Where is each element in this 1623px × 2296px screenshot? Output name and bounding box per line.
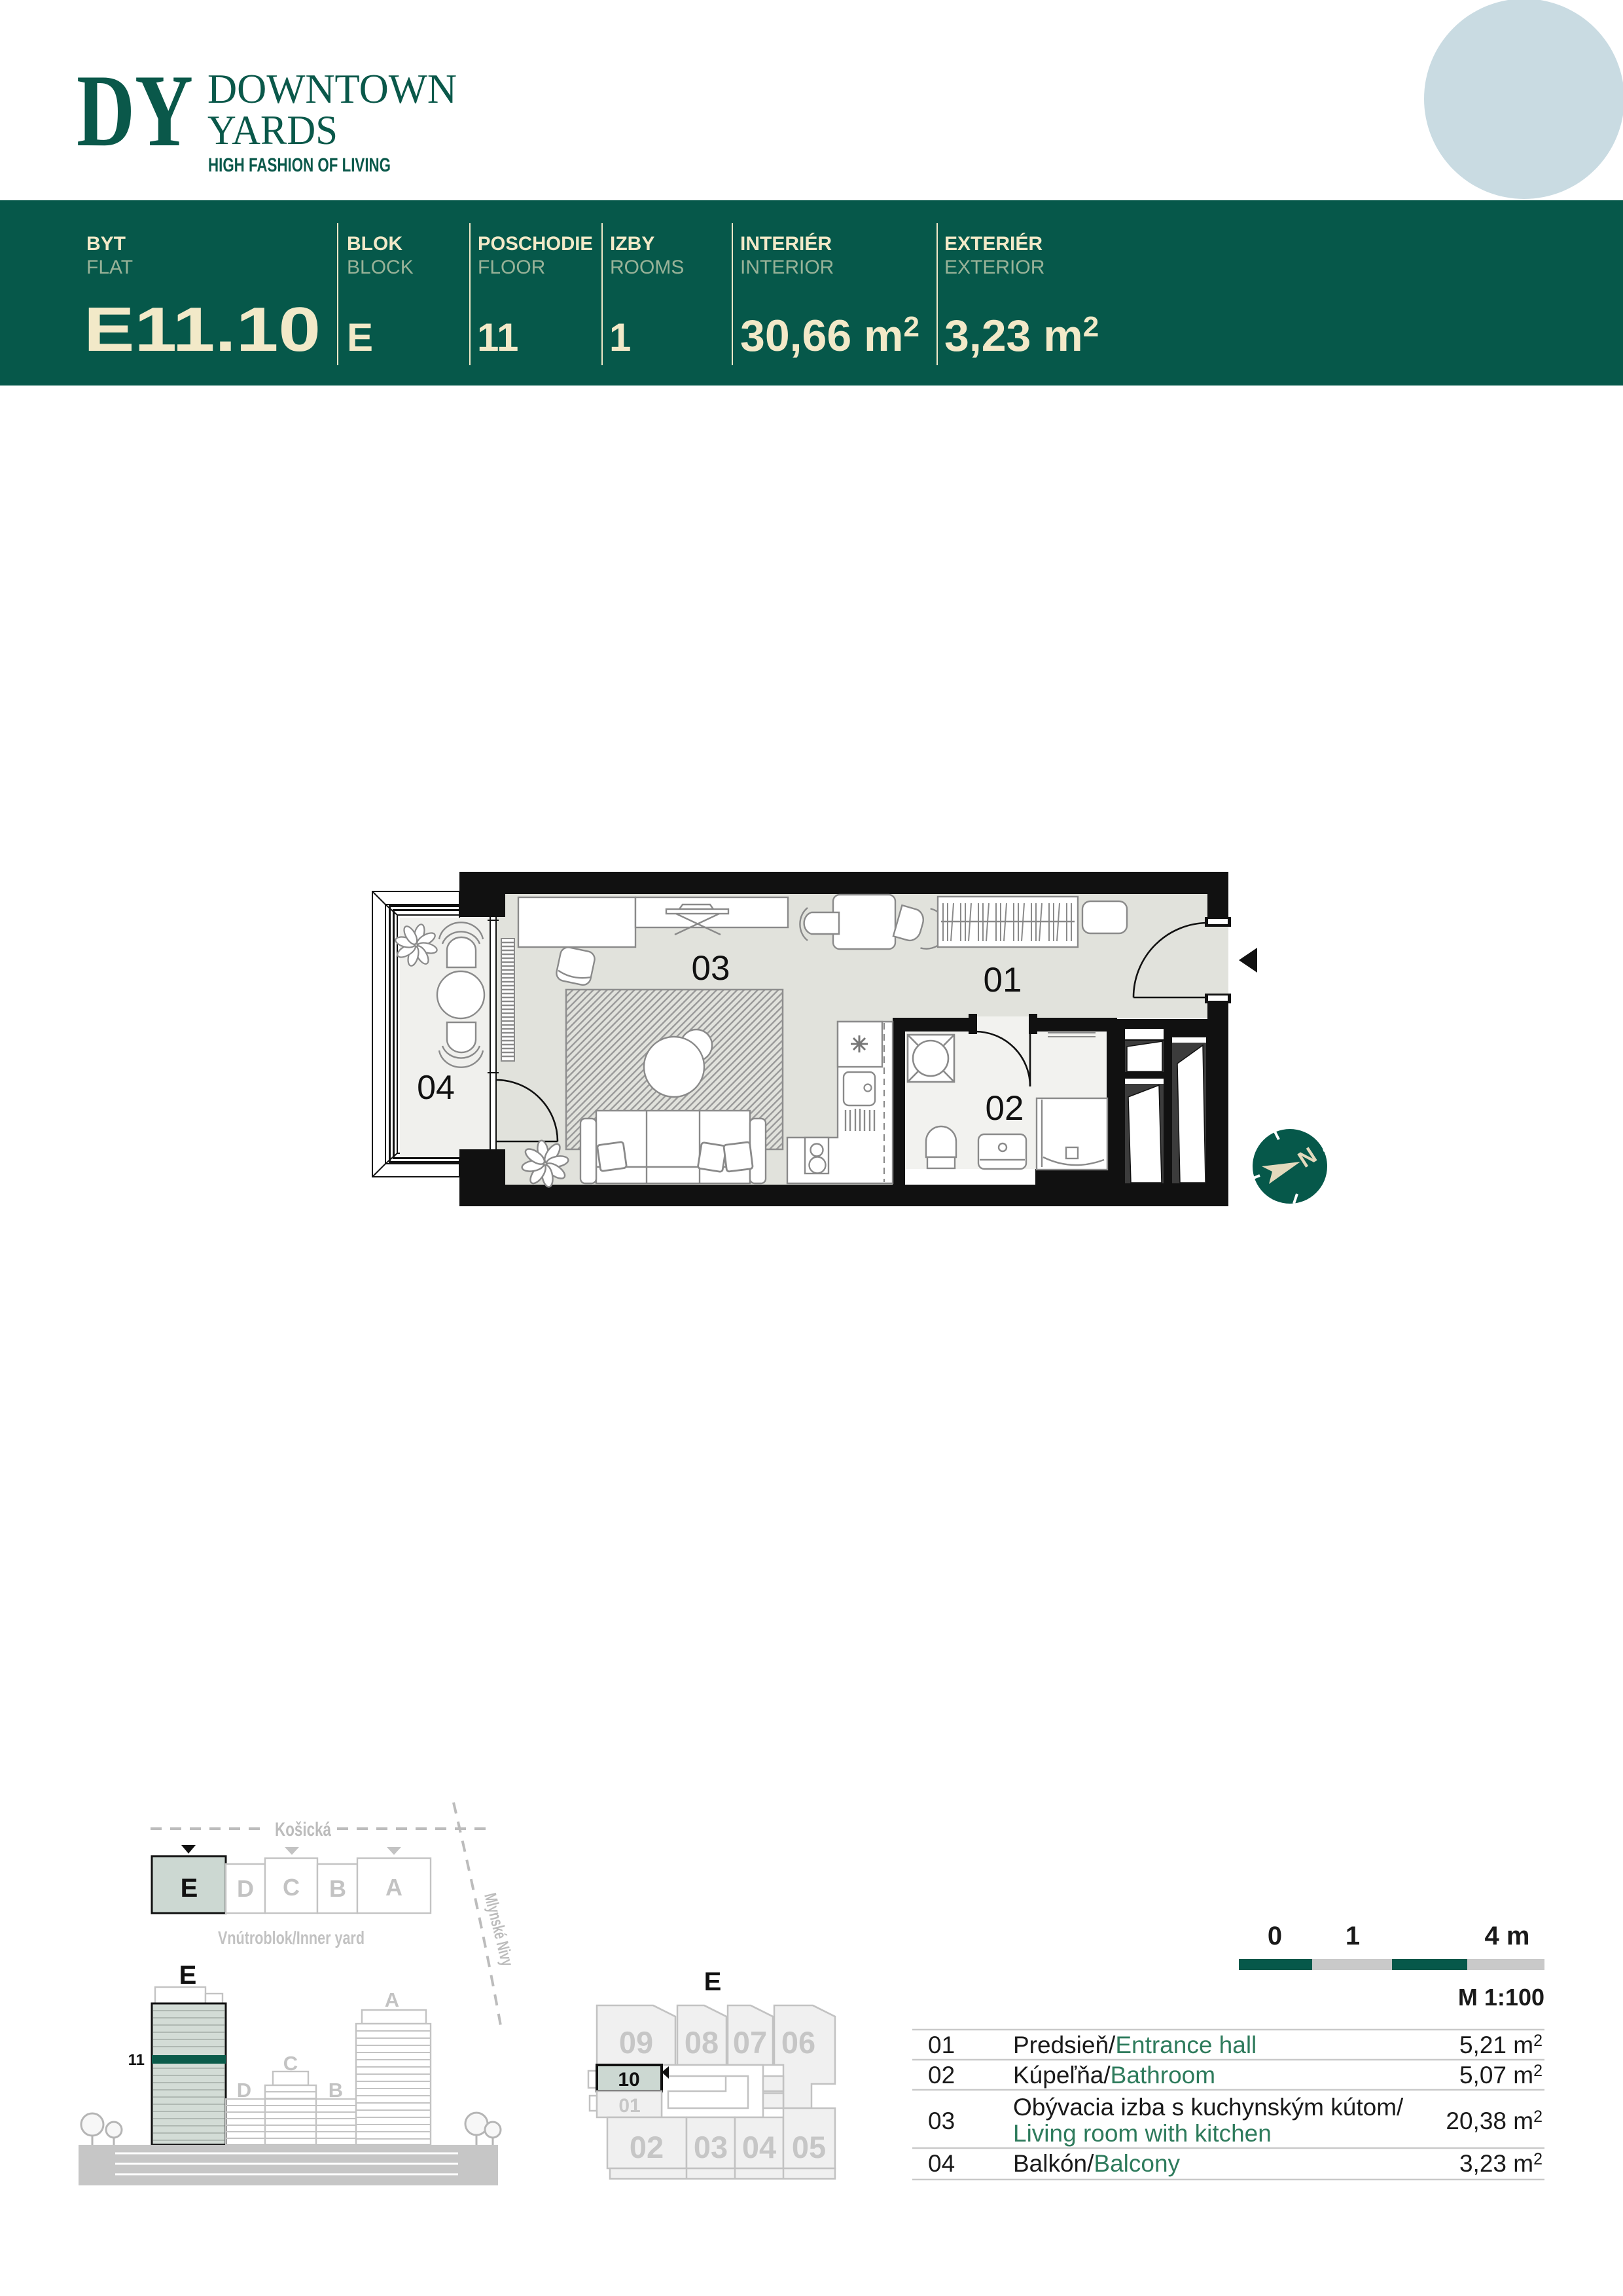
svg-text:04: 04 [742,2130,776,2164]
svg-text:D: D [237,1875,254,1902]
svg-text:POSCHODIE: POSCHODIE [478,233,593,255]
svg-text:11: 11 [477,315,518,359]
svg-text:INTERIOR: INTERIOR [740,257,834,278]
svg-text:08: 08 [685,2025,719,2060]
svg-text:5,21 m2: 5,21 m2 [1459,2032,1543,2058]
svg-text:09: 09 [619,2025,653,2060]
svg-text:E: E [347,315,373,359]
svg-text:YARDS: YARDS [207,107,338,153]
svg-text:FLOOR: FLOOR [478,257,545,278]
svg-text:01: 01 [618,2095,640,2117]
svg-text:1: 1 [1346,1922,1360,1950]
svg-text:02: 02 [630,2130,664,2164]
svg-text:EXTERIOR: EXTERIOR [944,257,1044,278]
svg-text:04: 04 [928,2150,955,2177]
svg-text:20,38 m2: 20,38 m2 [1446,2108,1543,2134]
svg-text:02: 02 [986,1089,1024,1128]
svg-text:Obývacia izba s kuchynským kút: Obývacia izba s kuchynským kútom/ [1013,2094,1404,2121]
svg-text:Košická: Košická [275,1819,331,1840]
svg-text:E: E [181,1874,198,1903]
svg-text:06: 06 [781,2025,815,2060]
svg-text:Kúpeľňa/Bathroom: Kúpeľňa/Bathroom [1013,2062,1215,2089]
svg-text:1: 1 [609,315,631,359]
svg-text:05: 05 [792,2130,826,2164]
svg-text:01: 01 [984,961,1022,999]
svg-text:A: A [385,1874,402,1901]
svg-text:M 1:100: M 1:100 [1458,1984,1544,2011]
svg-text:DY: DY [77,54,193,168]
svg-text:5,07 m2: 5,07 m2 [1459,2062,1543,2089]
svg-text:B: B [329,1875,346,1902]
svg-text:IZBY: IZBY [610,233,654,255]
svg-text:3,23 m2: 3,23 m2 [944,311,1099,361]
svg-text:01: 01 [928,2032,955,2058]
svg-text:C: C [283,2052,298,2075]
svg-text:04: 04 [417,1069,455,1107]
svg-text:3,23 m2: 3,23 m2 [1459,2150,1543,2177]
svg-text:11: 11 [128,2051,145,2069]
svg-text:07: 07 [733,2025,767,2060]
svg-text:4 m: 4 m [1485,1922,1530,1950]
svg-text:DOWNTOWN: DOWNTOWN [207,65,457,112]
svg-text:Vnútroblok/Inner yard: Vnútroblok/Inner yard [218,1928,365,1948]
svg-text:BYT: BYT [86,233,126,255]
svg-text:03: 03 [692,949,730,988]
svg-text:BLOK: BLOK [347,233,402,255]
svg-text:HIGH FASHION OF LIVING: HIGH FASHION OF LIVING [208,154,391,176]
svg-text:03: 03 [928,2108,955,2134]
svg-text:FLAT: FLAT [86,257,133,278]
svg-text:E: E [704,1967,722,1996]
svg-text:A: A [385,1988,399,2011]
svg-text:30,66 m2: 30,66 m2 [740,311,919,361]
svg-text:0: 0 [1268,1922,1282,1950]
svg-text:Living room with kitchen: Living room with kitchen [1013,2120,1272,2147]
svg-text:C: C [283,1874,300,1901]
svg-text:Predsieň/Entrance hall: Predsieň/Entrance hall [1013,2032,1257,2058]
svg-text:D: D [237,2079,251,2102]
svg-text:03: 03 [694,2130,728,2164]
svg-text:ROOMS: ROOMS [610,257,684,278]
svg-text:E11.10: E11.10 [84,295,321,365]
svg-text:10: 10 [618,2069,639,2090]
svg-text:EXTERIÉR: EXTERIÉR [944,232,1043,255]
svg-text:Balkón/Balcony: Balkón/Balcony [1013,2150,1181,2177]
svg-text:B: B [329,2079,343,2102]
svg-text:BLOCK: BLOCK [347,257,414,278]
svg-text:E: E [179,1961,197,1990]
svg-text:INTERIÉR: INTERIÉR [740,232,832,255]
svg-text:02: 02 [928,2062,955,2089]
